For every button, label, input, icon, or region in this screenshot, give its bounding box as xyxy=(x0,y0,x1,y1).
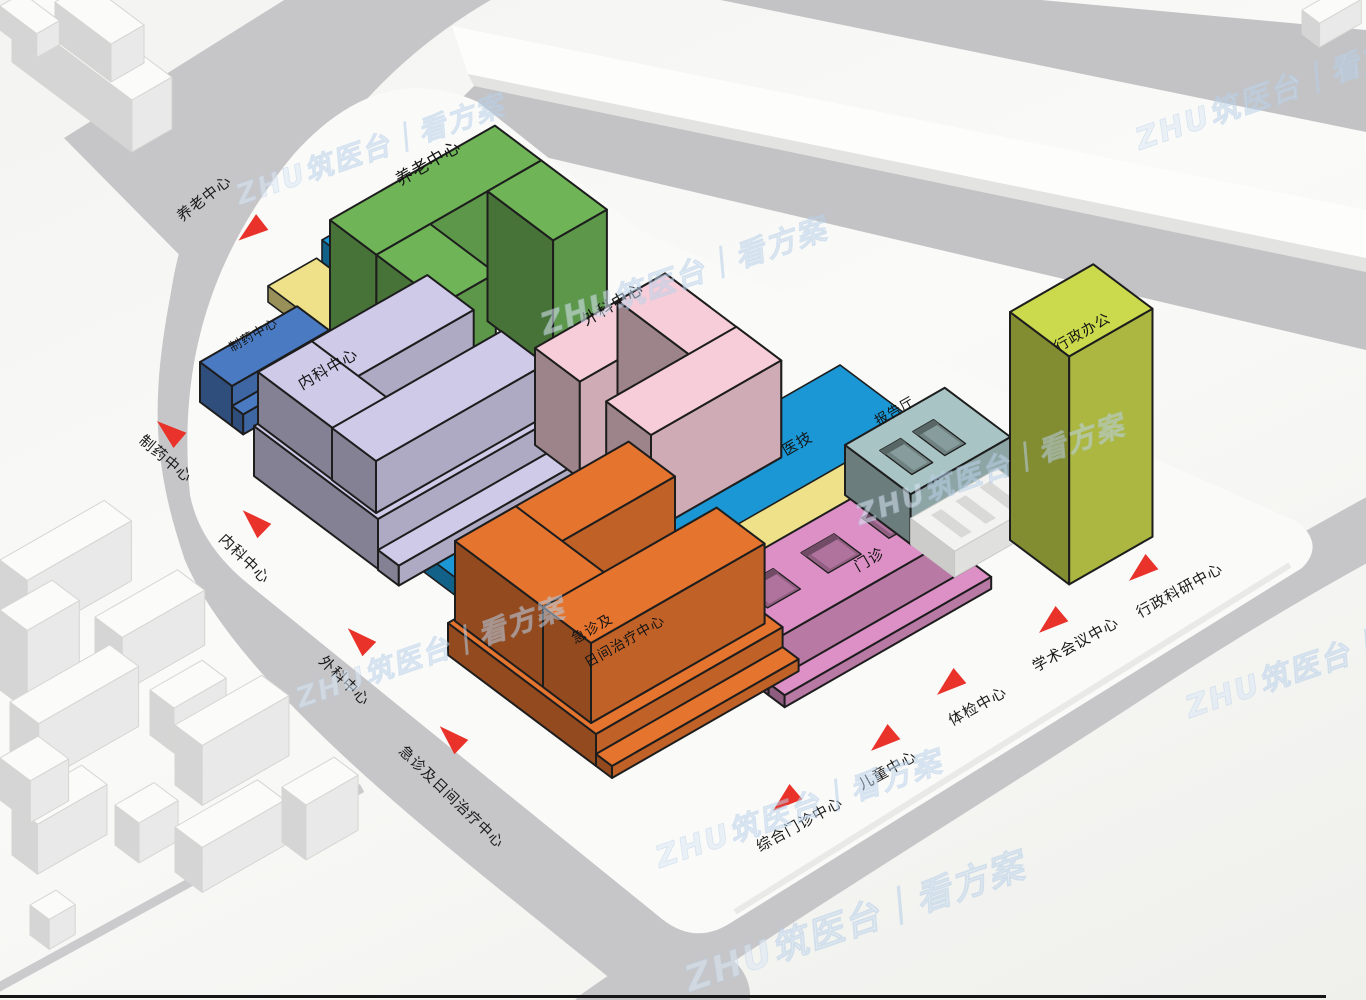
hospital-site-plan: 养老中心 制药中心 内科中心 外科中心 急诊及日间治疗中心 综合门诊中心 儿童中… xyxy=(0,0,1366,1000)
context-building xyxy=(30,890,75,949)
site-plan-canvas: 养老中心 制药中心 内科中心 外科中心 急诊及日间治疗中心 综合门诊中心 儿童中… xyxy=(0,0,1366,1000)
context-building xyxy=(282,757,358,860)
context-building xyxy=(115,783,178,863)
bottom-border-line xyxy=(0,995,1326,998)
